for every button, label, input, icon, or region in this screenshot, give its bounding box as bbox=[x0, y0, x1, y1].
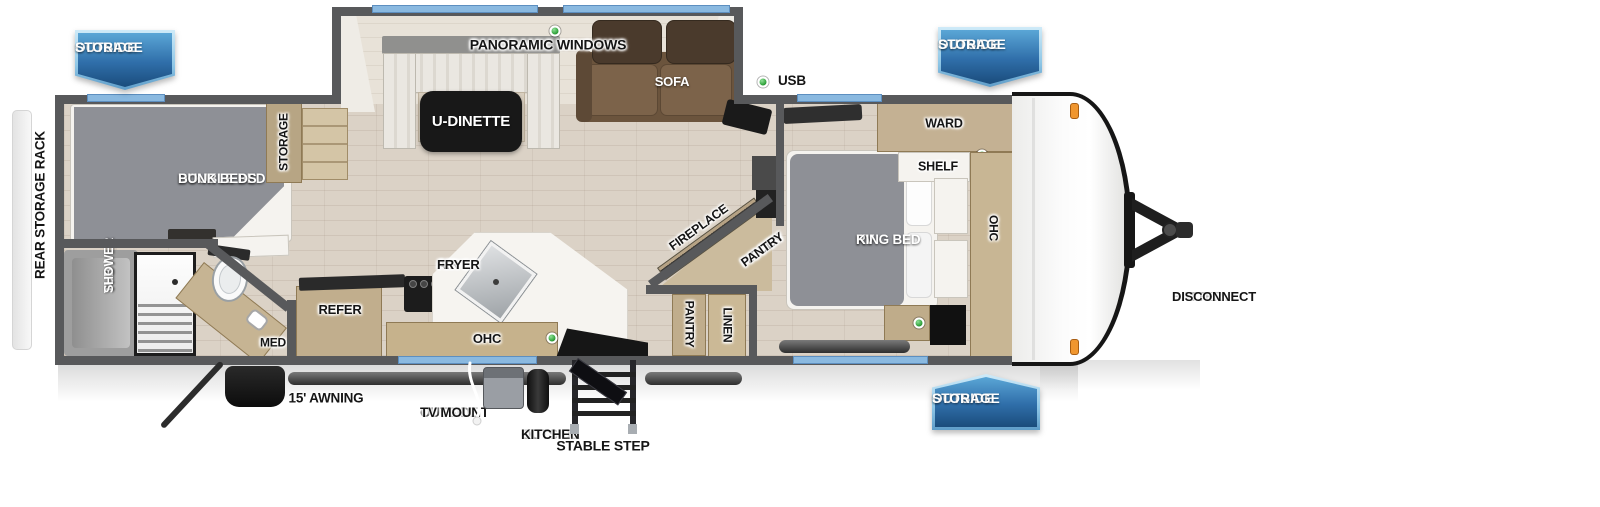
wall-left bbox=[55, 95, 64, 365]
step-foot-left bbox=[570, 424, 579, 434]
window-rear-top bbox=[87, 94, 165, 102]
shower-door bbox=[138, 300, 192, 352]
step-rung-3 bbox=[572, 398, 636, 403]
bedroom-drawer-top bbox=[934, 178, 968, 234]
pantry-label: PANTRY bbox=[683, 301, 696, 348]
front-cap-seam bbox=[1032, 98, 1035, 360]
sofa-seat-left bbox=[586, 64, 658, 116]
badge-outside-storage-top-left: OUTSIDESTORAGE bbox=[75, 30, 175, 90]
kitchen-ohc-label: OHC bbox=[473, 332, 501, 346]
usb-led-icon bbox=[758, 77, 769, 88]
dinette-bench-left bbox=[383, 53, 416, 149]
wall-bath-top bbox=[55, 239, 218, 248]
nightstand-led-icon bbox=[914, 318, 925, 329]
slide-led-icon bbox=[550, 26, 561, 37]
awning-bar-front bbox=[645, 372, 742, 385]
slide-wall-left bbox=[332, 7, 341, 104]
wall-bath-right bbox=[287, 300, 296, 360]
rear-storage-rack-label: REAR STORAGE RACK bbox=[34, 131, 49, 279]
wall-hall-vertical bbox=[749, 294, 757, 360]
awning-bar bbox=[288, 372, 566, 385]
bedroom-tv bbox=[930, 305, 966, 345]
linen-label: LINEN bbox=[721, 307, 734, 342]
step-rung-4 bbox=[572, 411, 636, 416]
bedroom-ohc-label: OHC bbox=[987, 215, 1000, 241]
refer-label: REFER bbox=[318, 303, 361, 317]
panoramic-windows-label: PANORAMIC WINDOWS bbox=[470, 37, 627, 52]
kitchen-led-icon bbox=[547, 333, 558, 344]
storage-label: STORAGE bbox=[278, 113, 291, 171]
window-bedroom-bottom bbox=[793, 356, 928, 364]
stove-burner-2 bbox=[420, 280, 428, 288]
rv-floorplan: REAR STORAGE RACK U-DINETTE SOFA DOUBLE … bbox=[0, 0, 1600, 507]
window-slide-left bbox=[372, 5, 538, 13]
window-bedroom-top bbox=[797, 94, 882, 102]
king-bed bbox=[790, 154, 904, 306]
bedroom-ohc-column bbox=[970, 152, 1014, 358]
front-cap bbox=[1012, 92, 1132, 366]
u-dinette-label: U-DINETTE bbox=[432, 114, 510, 131]
wall-bedroom-partition bbox=[776, 100, 784, 226]
kitchen-sink-drain-icon bbox=[493, 279, 499, 285]
sofa-label: SOFA bbox=[655, 75, 690, 89]
cap-marker-top-icon bbox=[1070, 103, 1079, 119]
slide-wall-right bbox=[734, 7, 743, 104]
bunk-wardrobe bbox=[302, 108, 348, 180]
bedroom-drawer-bottom bbox=[934, 240, 968, 298]
step-foot-right bbox=[628, 424, 637, 434]
awning-label: 15' AWNING bbox=[289, 392, 364, 407]
badge-outside-storage-top-right: OUTSIDESTORAGE bbox=[938, 27, 1042, 87]
window-slide-right bbox=[563, 5, 730, 13]
tub-inner bbox=[72, 258, 130, 348]
bedroom-window-shade bbox=[779, 340, 910, 353]
cap-marker-bottom-icon bbox=[1070, 339, 1079, 355]
wall-hall-horizontal bbox=[646, 285, 757, 294]
rear-entry-step bbox=[225, 366, 285, 407]
hitch-icon bbox=[1118, 182, 1196, 278]
outside-kitchen-canister bbox=[527, 369, 549, 413]
shower-head-icon bbox=[172, 279, 178, 285]
med-label: MED bbox=[260, 337, 286, 350]
step-rail-right bbox=[630, 360, 636, 426]
usb-label: USB bbox=[778, 74, 806, 89]
refer-cabinet bbox=[296, 286, 382, 357]
stove-burner-1 bbox=[409, 280, 417, 288]
sofa-back-cushion-right bbox=[666, 20, 736, 64]
dinette-bench-right bbox=[527, 53, 560, 149]
badge-outside-storage-bottom: OUTSIDESTORAGE bbox=[932, 374, 1040, 430]
ward-label: WARD bbox=[925, 117, 962, 131]
sofa-arm bbox=[576, 50, 592, 122]
outside-kitchen-unit bbox=[483, 367, 524, 409]
sofa-seat-right bbox=[660, 64, 732, 116]
shelf-label: SHELF bbox=[918, 160, 958, 174]
stable-step-label: STABLE STEP bbox=[556, 438, 649, 453]
rear-storage-rack bbox=[12, 110, 32, 350]
